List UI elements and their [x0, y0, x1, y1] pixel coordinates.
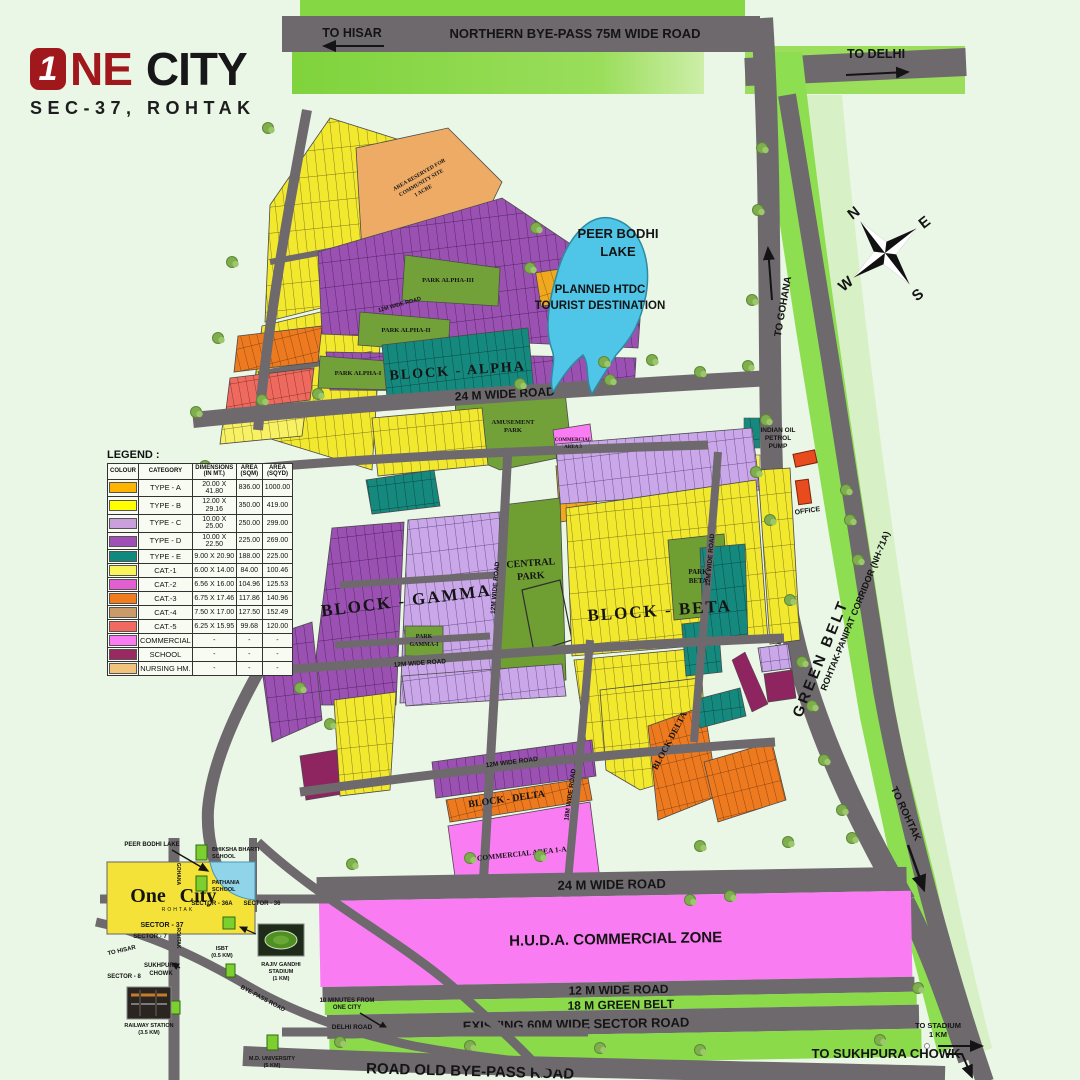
color-swatch	[109, 536, 137, 547]
inset-gohana-label: GOHANA	[175, 863, 181, 886]
road-24m-bottom-label: 24 M WIDE ROAD	[557, 876, 666, 893]
inset-delhi-road-label: DELHI ROAD	[332, 1024, 373, 1031]
inset-university-label: M.D. UNIVERSITY	[249, 1056, 295, 1062]
inset-sector8-label: SECTOR - 8	[107, 974, 141, 980]
svg-text:PARK: PARK	[504, 427, 522, 434]
legend-row: TYPE - A20.00 X 41.80836.001000.00	[108, 479, 293, 497]
inset-one-city-label: One	[130, 885, 166, 907]
inset-peer-lake-label: PEER BODHI LAKE	[124, 842, 179, 848]
svg-text:LAKE: LAKE	[600, 244, 636, 259]
lake-planned-note: PLANNED HTDC	[555, 284, 646, 296]
logo-one-icon: 1	[30, 48, 66, 90]
to-sukhpura-label: TO SUKHPURA CHOWK	[812, 1046, 961, 1061]
legend-row: TYPE - C10.00 X 25.00250.00299.00	[108, 514, 293, 532]
inset-sector36a-label: SECTOR - 36A	[191, 901, 233, 907]
svg-text:PUMP: PUMP	[769, 443, 788, 450]
color-swatch	[109, 482, 137, 493]
color-swatch	[109, 649, 137, 660]
color-swatch	[109, 635, 137, 646]
legend-row: CAT.-56.25 X 15.9599.68120.00	[108, 620, 293, 634]
svg-text:SCHOOL: SCHOOL	[212, 854, 236, 860]
svg-text:GAMMA-I: GAMMA-I	[410, 642, 440, 648]
legend-row: TYPE - D10.00 X 22.50225.00269.00	[108, 532, 293, 550]
legend-row: NURSING HM.---	[108, 662, 293, 676]
svg-text:(0.5 KM): (0.5 KM)	[211, 953, 233, 959]
northern-bypass: TO HISAR NORTHERN BYE-PASS 75M WIDE ROAD…	[282, 0, 966, 94]
legend-row: CAT.-47.50 X 17.00127.50152.49	[108, 606, 293, 620]
logo-city-text: CITY	[146, 46, 247, 92]
legend: LEGEND : COLOUR CATEGORY DIMENSIONS (IN …	[107, 449, 293, 676]
color-swatch	[109, 518, 137, 529]
svg-text:PETROL: PETROL	[765, 435, 791, 442]
logo-one-text: NE	[70, 46, 132, 92]
road-12m-bottom-label: 12 M WIDE ROAD	[568, 982, 669, 998]
lake-name: PEER BODHI	[578, 226, 659, 241]
color-swatch	[109, 551, 137, 562]
inset-school2-label: PATHANIA	[212, 880, 240, 886]
brand-logo: 1NECITY SEC-37, ROHTAK	[30, 46, 256, 119]
commercial-area3-label: COMMERCIAL	[555, 438, 592, 443]
svg-text:(5 KM): (5 KM)	[264, 1063, 281, 1069]
inset-rohtak-label: ROHTAK	[175, 927, 181, 948]
park-alpha3-label: PARK ALPHA-III	[422, 277, 474, 284]
svg-text:TOURIST DESTINATION: TOURIST DESTINATION	[535, 300, 666, 312]
svg-text:S: S	[909, 285, 927, 305]
inset-isbt-label: ISBT	[216, 946, 229, 952]
color-swatch	[109, 579, 137, 590]
color-swatch	[109, 621, 137, 632]
legend-title: LEGEND :	[107, 449, 293, 461]
inset-sector36-label: SECTOR - 36	[244, 901, 282, 907]
legend-row: SCHOOL---	[108, 648, 293, 662]
svg-text:ONE CITY: ONE CITY	[333, 1005, 361, 1011]
amusement-park-label: AMUSEMENT	[492, 419, 536, 426]
svg-text:(3.5 KM): (3.5 KM)	[138, 1030, 160, 1036]
svg-text:ROHTAK: ROHTAK	[162, 907, 194, 913]
legend-row: TYPE - E9.00 X 20.90188.00225.00	[108, 550, 293, 564]
to-hisar-label: TO HISAR	[322, 26, 382, 40]
park-alpha2-label: PARK ALPHA-II	[381, 327, 431, 334]
site-map-page: TO HISAR NORTHERN BYE-PASS 75M WIDE ROAD…	[0, 0, 1080, 1080]
northern-bypass-label: NORTHERN BYE-PASS 75M WIDE ROAD	[449, 26, 700, 41]
color-swatch	[109, 607, 137, 618]
svg-text:E: E	[916, 213, 934, 233]
inset-school1-label: BHIKSHA BHARTI	[212, 847, 260, 853]
park-gamma-label: PARK	[416, 634, 433, 640]
svg-text:1 KM: 1 KM	[929, 1030, 947, 1039]
color-swatch	[109, 593, 137, 604]
inset-railway-label: RAILWAY STATION	[124, 1023, 173, 1029]
to-delhi-label: TO DELHI	[847, 47, 905, 61]
svg-text:PARK: PARK	[517, 570, 546, 583]
legend-row: CAT.-16.00 X 14.0084.00100.46	[108, 564, 293, 578]
legend-row: COMMERCIAL---	[108, 634, 293, 648]
legend-row: CAT.-36.75 X 17.46117.86140.96	[108, 592, 293, 606]
svg-text:AREA 3: AREA 3	[564, 445, 582, 450]
legend-row: TYPE - B12.00 X 29.16350.00419.00	[108, 497, 293, 515]
petrol-pump-label: INDIAN OIL	[760, 427, 795, 434]
park-alpha1-label: PARK ALPHA-I	[335, 370, 382, 377]
to-stadium-label: TO STADIUM	[915, 1021, 961, 1030]
svg-text:SCHOOL: SCHOOL	[212, 887, 236, 893]
color-swatch	[109, 565, 137, 576]
svg-text:CHOWK: CHOWK	[149, 971, 173, 977]
svg-text:(1 KM): (1 KM)	[273, 976, 290, 982]
site-office-marker	[795, 479, 811, 505]
ten-minutes-note: 10 MINUTES FROM	[320, 998, 375, 1004]
inset-sector7-label: SECTOR - 7	[133, 934, 167, 940]
inset-to-hisar-label: TO HISAR	[107, 945, 137, 957]
bottom-bands: 24 M WIDE ROAD H.U.D.A. COMMERCIAL ZONE …	[317, 867, 922, 1067]
legend-table: COLOUR CATEGORY DIMENSIONS (IN MT.) AREA…	[107, 463, 293, 676]
inset-stadium-label: RAJIV GANDHI	[261, 962, 301, 968]
svg-text:STADIUM: STADIUM	[269, 969, 294, 975]
color-swatch	[109, 500, 137, 511]
logo-subtitle: SEC-37, ROHTAK	[30, 98, 256, 119]
color-swatch	[109, 663, 137, 674]
legend-row: CAT.-26.56 X 16.00104.96125.53	[108, 578, 293, 592]
petrol-pump-marker	[793, 450, 817, 467]
